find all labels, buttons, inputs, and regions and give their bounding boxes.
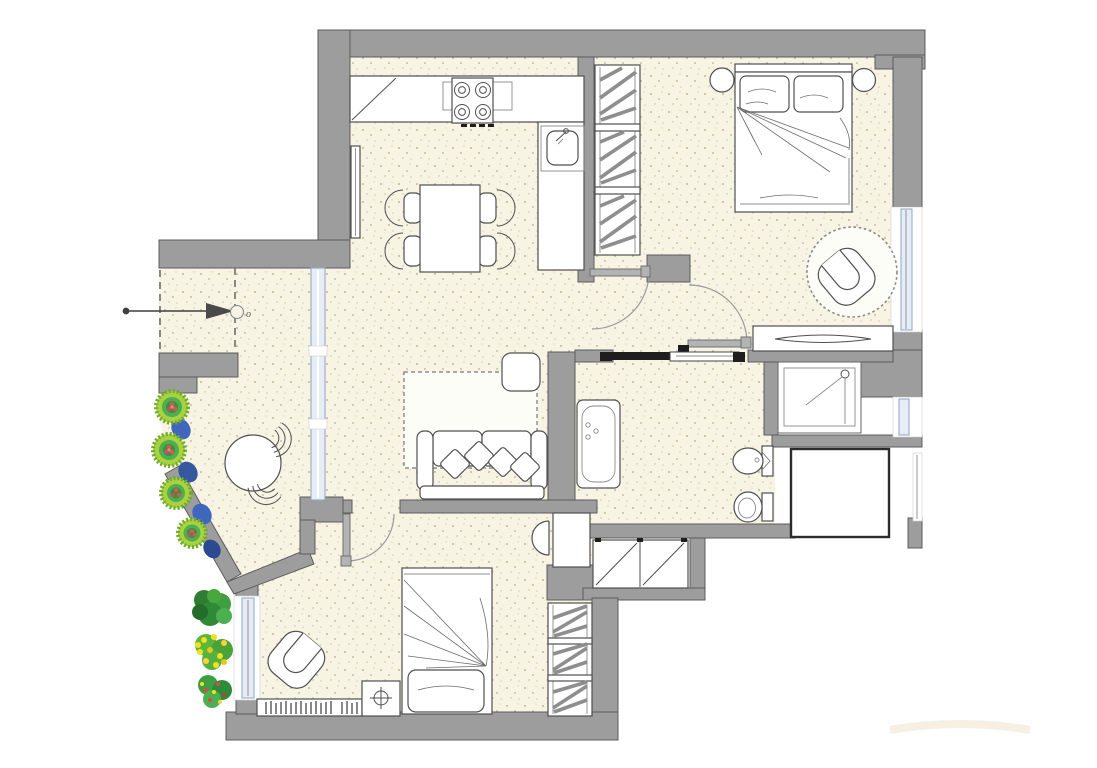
double-bed bbox=[735, 64, 852, 212]
toilet bbox=[733, 446, 773, 476]
bidet bbox=[734, 492, 773, 522]
faint-watermark bbox=[890, 724, 1030, 730]
hall-closet bbox=[593, 538, 688, 588]
floor-plan: o bbox=[0, 0, 1097, 768]
bathtub bbox=[577, 400, 620, 488]
side-table bbox=[502, 353, 540, 391]
bush-green bbox=[192, 589, 232, 626]
sofa bbox=[417, 431, 547, 499]
flower-2 bbox=[153, 434, 185, 466]
entry-point-marker bbox=[231, 306, 244, 319]
nightstand-left bbox=[710, 68, 734, 92]
wardrobe-2 bbox=[548, 603, 592, 716]
single-bed bbox=[402, 568, 492, 714]
radiator bbox=[351, 146, 360, 238]
bush-yellow bbox=[195, 634, 233, 670]
window-bedroom1 bbox=[901, 209, 912, 330]
window-stairwell bbox=[913, 453, 922, 521]
flower-4 bbox=[178, 519, 206, 547]
flower-1 bbox=[156, 391, 188, 423]
flower-3 bbox=[161, 478, 191, 508]
bedside-table bbox=[362, 681, 400, 716]
dresser bbox=[753, 326, 893, 351]
shower bbox=[778, 362, 861, 433]
garden-plants bbox=[192, 589, 233, 708]
stairwell-elevator bbox=[791, 449, 889, 537]
terrace-table bbox=[225, 435, 281, 491]
nightstand-right bbox=[853, 69, 876, 92]
floor-plan-canvas: o bbox=[0, 0, 1097, 768]
bookshelf bbox=[257, 699, 362, 716]
window-shower bbox=[899, 399, 909, 435]
entry-label: o bbox=[246, 309, 251, 320]
bush-berries bbox=[198, 675, 232, 708]
tall-wardrobe bbox=[595, 65, 640, 255]
dining-table bbox=[420, 185, 480, 272]
